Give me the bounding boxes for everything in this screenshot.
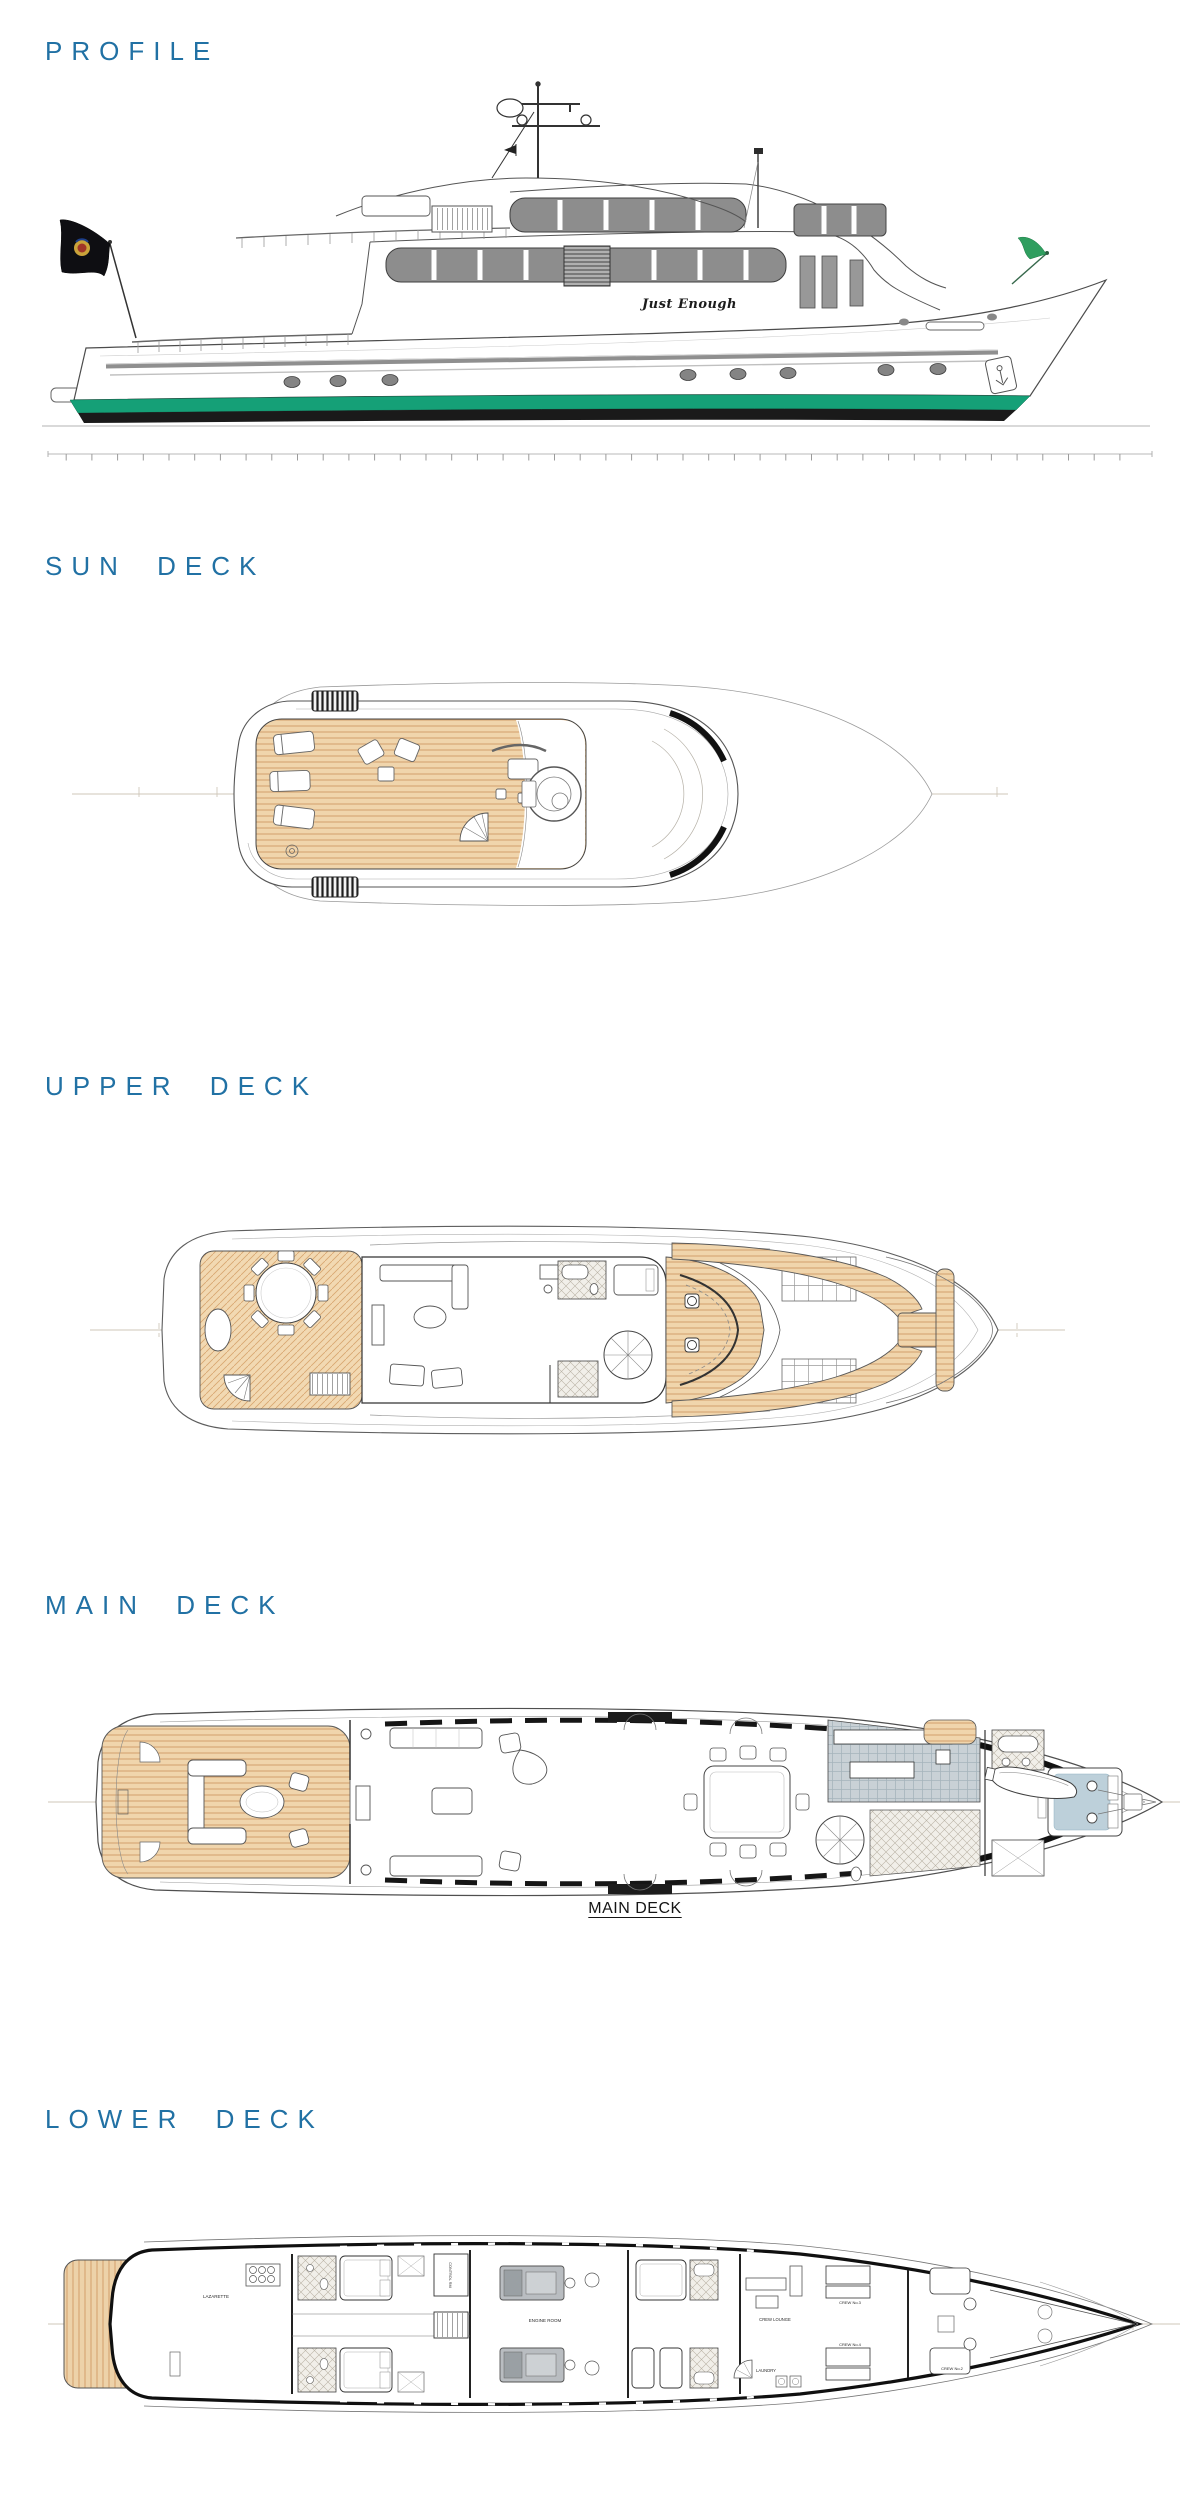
aft-deck (102, 1726, 350, 1878)
heading-profile: PROFILE (45, 36, 219, 67)
heading-lower-deck: LOWER DECK (45, 2104, 324, 2135)
crew4-label: CREW No.4 (839, 2342, 862, 2347)
dining-table (704, 1766, 790, 1838)
engine (500, 2348, 575, 2382)
engine-room-label: ENGINE ROOM (529, 2318, 562, 2323)
oval-table (205, 1309, 231, 1351)
sun-loungers (270, 731, 315, 829)
crew2-label: CREW No.2 (941, 2366, 964, 2371)
bow-pennant (1012, 237, 1049, 284)
engine (500, 2266, 575, 2300)
lazarette-label: LAZARETTE (203, 2294, 229, 2299)
stairs-control: CONTROL RM (434, 2254, 468, 2338)
profile-drawing: Just Enough (40, 70, 1160, 470)
crew-bunk (826, 2348, 870, 2366)
breakfast-nook (924, 1720, 976, 1744)
windlass (1087, 1781, 1097, 1791)
aft-antenna (744, 148, 763, 228)
heading-upper-deck: UPPER DECK (45, 1071, 318, 1102)
main-deck-caption: MAIN DECK (520, 1900, 750, 1918)
vent-louver (434, 208, 490, 230)
heading-sun-deck: SUN DECK (45, 551, 265, 582)
lower-deck-plan: LAZARETTE CONTR (40, 2220, 1190, 2500)
upper-window-band (510, 198, 746, 232)
scale-ruler (48, 451, 1152, 462)
aft-deck (200, 1251, 362, 1409)
round-dining-table (256, 1263, 316, 1323)
yacht-name-text: Just Enough (639, 297, 737, 312)
main-deck-plan (40, 1690, 1190, 1920)
crew-bunk (826, 2266, 870, 2284)
control-room-label: CONTROL RM (448, 2262, 452, 2287)
radar-dome (497, 99, 523, 117)
hull-outline (110, 2236, 1152, 2413)
louver-grille (564, 246, 610, 286)
crew-lounge-label: CREW LOUNGE (759, 2317, 791, 2322)
sun-deck-plan (60, 645, 1020, 915)
yacht-deck-plans-page: PROFILE (0, 0, 1200, 2510)
laundry-label: LAUNDRY (756, 2368, 776, 2373)
galley-island (850, 1762, 914, 1778)
mast-burgee (504, 145, 516, 154)
radar-mast (492, 82, 600, 178)
windlass (1087, 1813, 1097, 1823)
stern-flag (60, 220, 136, 338)
hull-profile (51, 280, 1106, 423)
crew3-label: CREW No.3 (839, 2300, 862, 2305)
heading-main-deck: MAIN DECK (45, 1590, 284, 1621)
upper-deck-plan (80, 1205, 1080, 1465)
